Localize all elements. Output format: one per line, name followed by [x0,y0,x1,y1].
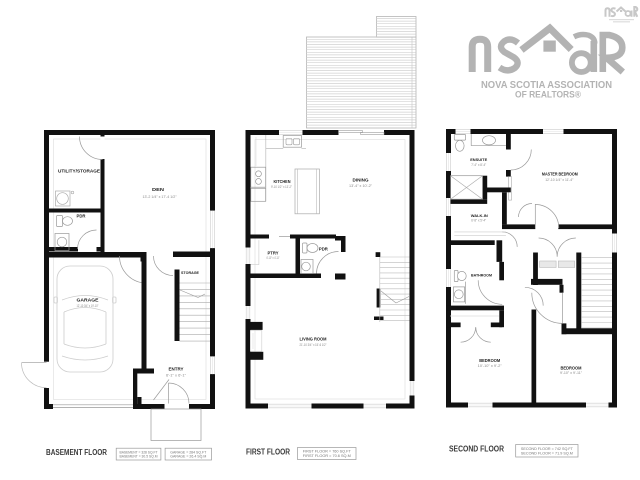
svg-text:BEDROOM: BEDROOM [479,358,500,363]
svg-text:GARAGE = 26.4 SQ.M: GARAGE = 26.4 SQ.M [170,455,206,459]
svg-text:BEDROOM: BEDROOM [561,365,582,370]
svg-text:7'-4" x 8'-4": 7'-4" x 8'-4" [471,163,487,167]
svg-text:9'-10 1/2" x 13'-2": 9'-10 1/2" x 13'-2" [271,185,293,189]
svg-text:6'-1" x 6'-1": 6'-1" x 6'-1" [166,374,187,378]
svg-text:PTRY: PTRY [268,251,279,256]
svg-text:BASEMENT = 328 SQ.FT: BASEMENT = 328 SQ.FT [120,450,158,454]
svg-text:10'-10" x 9'-2": 10'-10" x 9'-2" [478,364,503,368]
svg-text:ENTRY: ENTRY [169,367,184,372]
svg-text:LIVING ROOM: LIVING ROOM [300,337,327,342]
svg-text:PDR: PDR [77,214,86,219]
svg-text:BATHROOM: BATHROOM [471,273,493,278]
svg-text:SECOND FLOOR = 742 SQ.FT: SECOND FLOOR = 742 SQ.FT [521,447,573,451]
svg-text:ENSUITE: ENSUITE [470,157,487,162]
svg-text:6'-10" x 4'-11": 6'-10" x 4'-11" [267,256,280,260]
svg-text:GARAGE = 284 SQ.FT: GARAGE = 284 SQ.FT [170,450,206,454]
svg-text:13'-4" x 10'-2": 13'-4" x 10'-2" [349,184,373,188]
svg-text:12'-10 1/4" x 11'-4": 12'-10 1/4" x 11'-4" [545,178,574,182]
svg-text:UTILITY/STORAGE: UTILITY/STORAGE [58,169,100,174]
svg-text:6'-8" x 5'-4": 6'-8" x 5'-4" [471,219,487,223]
svg-text:OF REALTORS®: OF REALTORS® [515,89,581,99]
svg-text:DINING: DINING [353,178,370,183]
svg-text:SECOND FLOOR = 71.9 SQ.M: SECOND FLOOR = 71.9 SQ.M [521,451,573,455]
svg-text:21'-10 3/4" x 15'-6 1/2": 21'-10 3/4" x 15'-6 1/2" [300,343,328,347]
svg-text:WALK-IN: WALK-IN [471,213,488,218]
svg-text:FIRST FLOOR = 70.6 SQ.M: FIRST FLOOR = 70.6 SQ.M [303,454,351,458]
svg-text:9'-10" x 9'-11": 9'-10" x 9'-11" [560,371,583,375]
svg-text:GARAGE: GARAGE [77,298,99,303]
svg-text:BASEMENT FLOOR: BASEMENT FLOOR [46,447,108,457]
svg-text:MASTER BEDROOM: MASTER BEDROOM [542,171,578,176]
svg-text:12'-10 3/4" x 19'-10": 12'-10 3/4" x 19'-10" [77,304,99,308]
svg-text:PDR: PDR [319,247,328,252]
svg-text:SECOND FLOOR: SECOND FLOOR [449,444,505,454]
svg-text:FIRST FLOOR: FIRST FLOOR [246,447,291,457]
svg-text:FIRST FLOOR = 760 SQ.FT: FIRST FLOOR = 760 SQ.FT [303,450,351,454]
svg-text:DEN: DEN [152,187,165,193]
svg-text:13'-2 1/4" x 17'-4 1/2": 13'-2 1/4" x 17'-4 1/2" [143,195,178,199]
svg-text:KITCHEN: KITCHEN [274,179,291,184]
svg-text:BASEMENT = 30.5 SQ.M: BASEMENT = 30.5 SQ.M [120,455,158,459]
svg-text:STORAGE: STORAGE [181,270,199,275]
